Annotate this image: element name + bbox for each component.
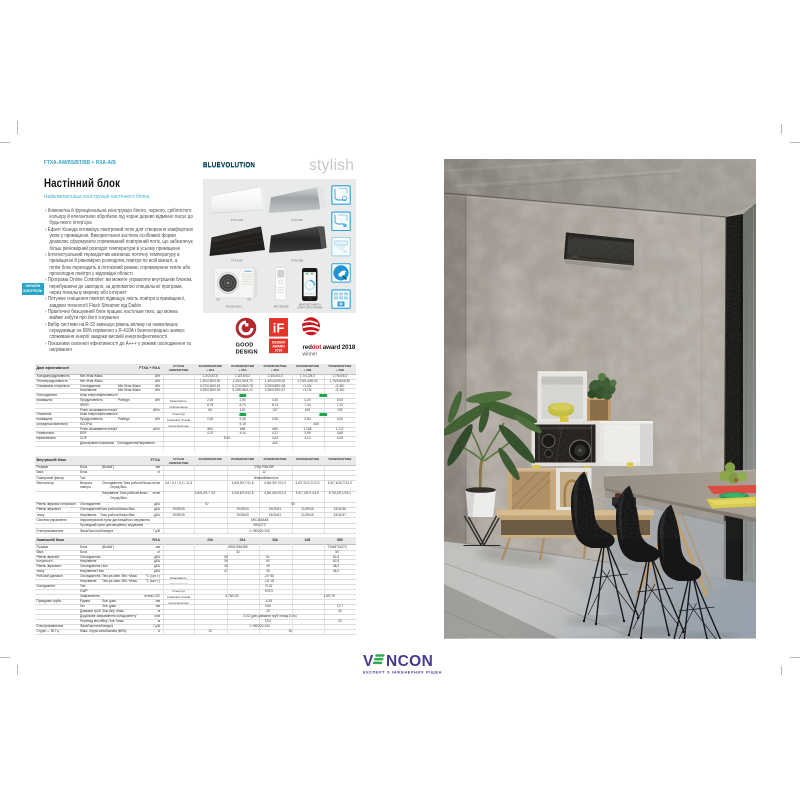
svg-text:DESIGN: DESIGN <box>236 350 258 356</box>
svg-text:iF: iF <box>273 321 285 336</box>
svg-text:RXA20-50A3: RXA20-50A3 <box>226 305 242 309</box>
svg-text:GOOD: GOOD <box>236 342 254 348</box>
svg-text:СМАРТ-ПРИСТРОЯМИ: СМАРТ-ПРИСТРОЯМИ <box>297 307 322 310</box>
svg-text:V: V <box>363 653 374 670</box>
svg-text:2018: 2018 <box>275 349 283 353</box>
svg-text:FTXA-BT: FTXA-BT <box>231 259 243 263</box>
svg-text:DAIKIN: DAIKIN <box>244 270 252 273</box>
svg-text:reddot award 2018: reddot award 2018 <box>303 344 356 351</box>
svg-text:NCON: NCON <box>386 653 433 670</box>
svg-text:FTXA-BB: FTXA-BB <box>291 259 303 263</box>
svg-text:FTXA-BS: FTXA-BS <box>291 218 303 222</box>
svg-text:ВИКОРИСТАННЯ ЗІ: ВИКОРИСТАННЯ ЗІ <box>299 303 321 306</box>
svg-text:FTXA-AW: FTXA-AW <box>231 218 243 222</box>
svg-text:ARC466A58: ARC466A58 <box>273 305 288 309</box>
svg-text:ЕКСПЕРТ З ІНЖЕНЕРНИХ РІШЕНЬ: ЕКСПЕРТ З ІНЖЕНЕРНИХ РІШЕНЬ <box>363 670 442 675</box>
svg-text:winner: winner <box>303 352 318 358</box>
